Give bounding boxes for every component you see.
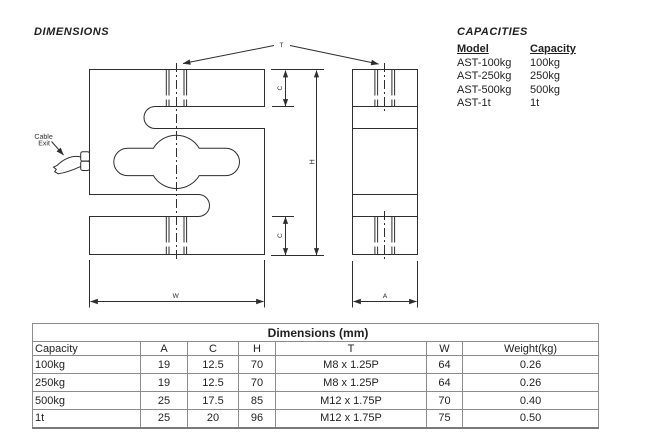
svg-text:C: C	[277, 233, 284, 238]
svg-text:C: C	[277, 86, 284, 91]
svg-text:A: A	[383, 293, 388, 300]
svg-text:T: T	[279, 42, 283, 49]
svg-text:H: H	[310, 159, 317, 164]
svg-text:Exit: Exit	[38, 140, 50, 147]
svg-text:W: W	[173, 293, 180, 300]
